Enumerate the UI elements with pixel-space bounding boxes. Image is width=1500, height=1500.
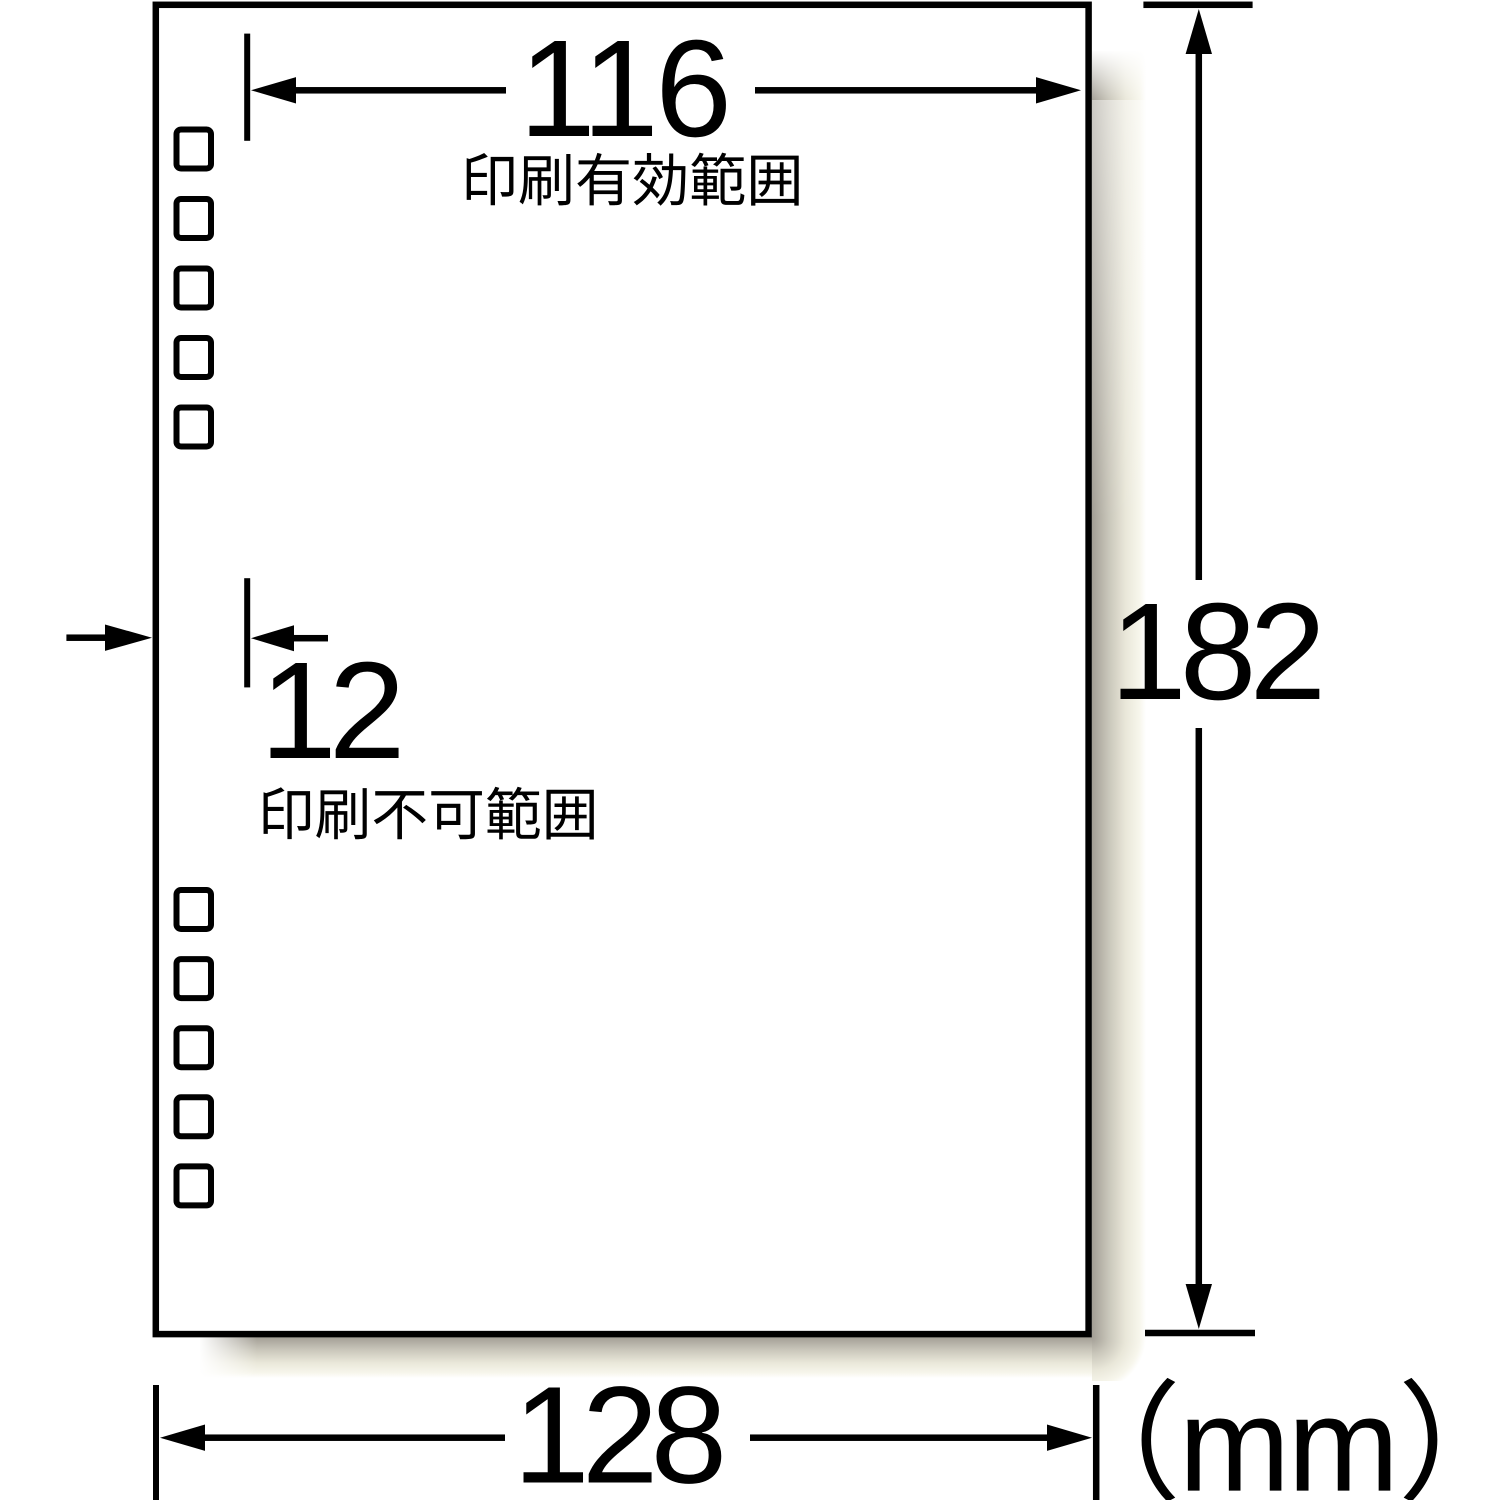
svg-text:12: 12	[260, 634, 399, 788]
svg-text:116: 116	[519, 12, 729, 166]
svg-text:mm: mm	[1179, 1371, 1397, 1500]
svg-text:182: 182	[1110, 575, 1319, 729]
svg-text:128: 128	[513, 1359, 721, 1500]
